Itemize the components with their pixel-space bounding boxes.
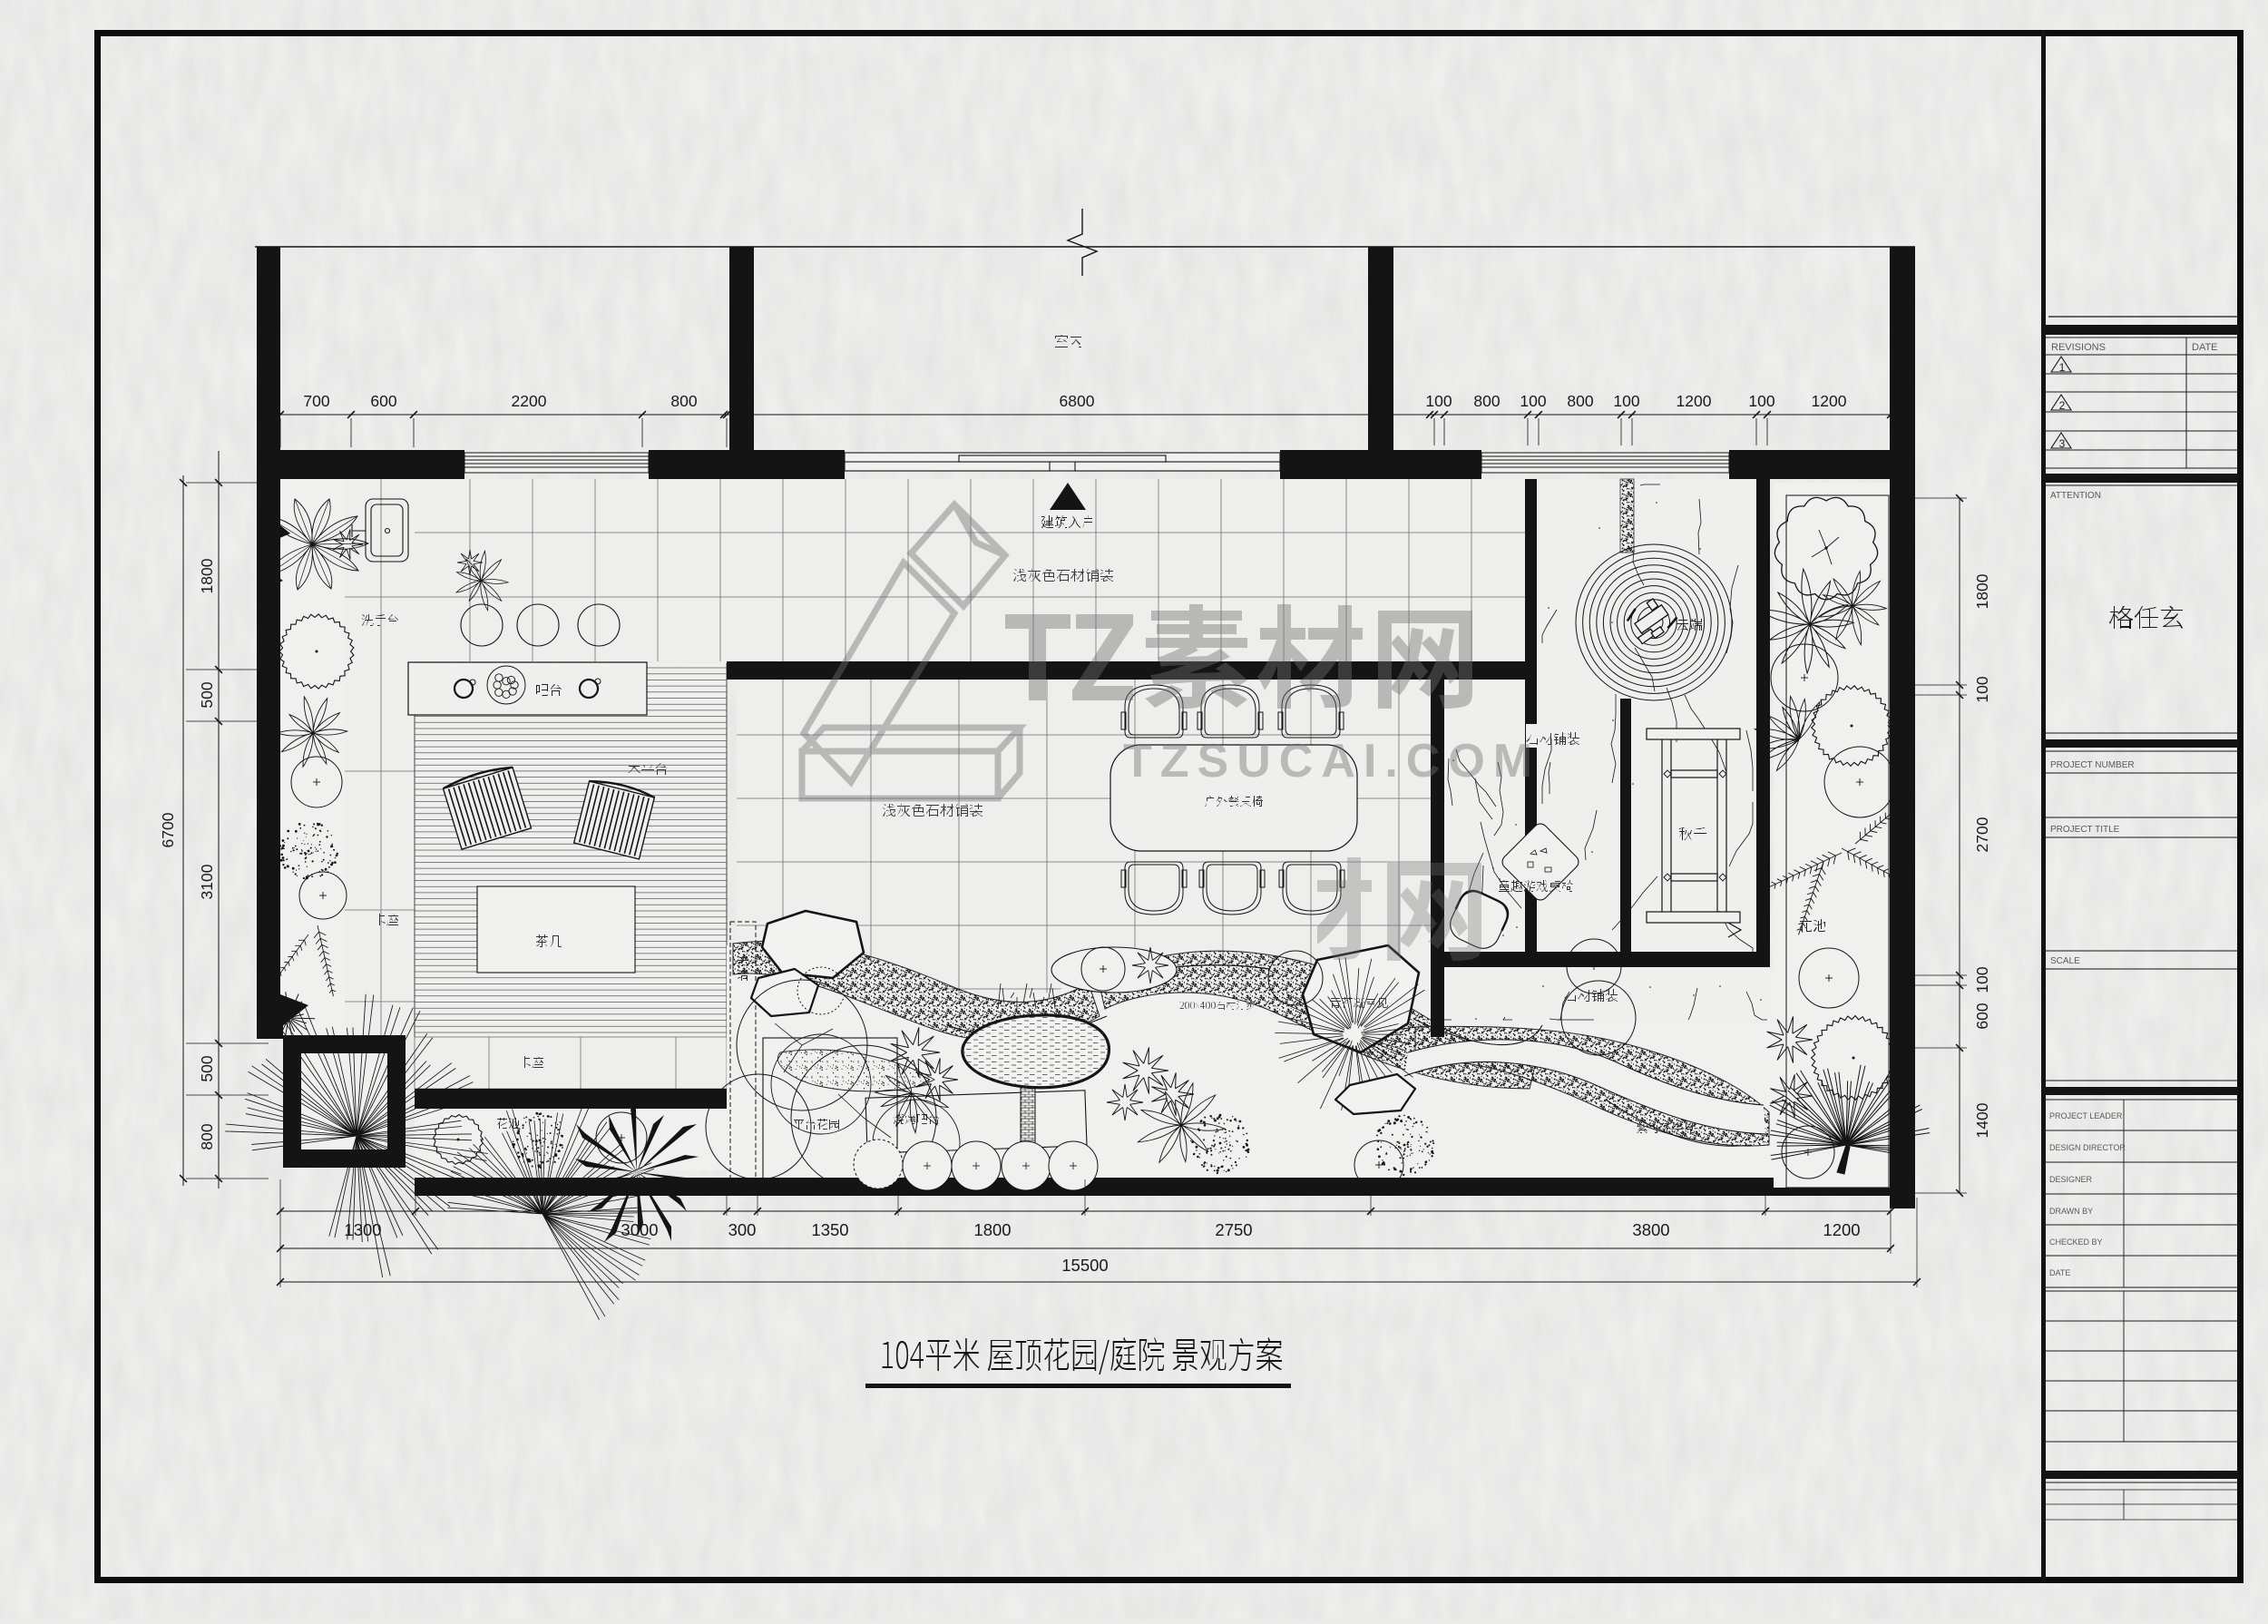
svg-text:CHECKED BY: CHECKED BY [2049,1238,2103,1247]
svg-text:1350: 1350 [811,1220,848,1239]
svg-text:100: 100 [1973,676,1991,702]
svg-text:2700: 2700 [1973,817,1991,852]
svg-text:100: 100 [1613,392,1639,410]
svg-text:1800: 1800 [973,1220,1011,1239]
svg-text:PROJECT TITLE: PROJECT TITLE [2050,825,2120,835]
svg-text:1300: 1300 [344,1220,381,1239]
svg-text:DRAWN BY: DRAWN BY [2049,1207,2093,1216]
svg-text:DESIGNER: DESIGNER [2049,1175,2093,1184]
svg-text:600: 600 [1973,1003,1991,1029]
svg-text:DATE: DATE [2049,1268,2070,1277]
svg-text:2: 2 [2059,399,2066,412]
svg-text:500: 500 [198,681,216,708]
svg-text:3: 3 [2059,437,2066,450]
svg-text:100: 100 [1520,392,1546,410]
svg-text:300: 300 [728,1220,757,1239]
svg-text:6700: 6700 [159,812,177,847]
svg-text:1200: 1200 [1677,392,1712,410]
svg-text:800: 800 [1567,392,1593,410]
svg-text:REVISIONS: REVISIONS [2051,342,2106,353]
svg-text:PROJECT NUMBER: PROJECT NUMBER [2050,760,2135,770]
svg-text:1200: 1200 [1823,1220,1860,1239]
svg-text:3800: 3800 [1632,1220,1669,1239]
svg-text:1400: 1400 [1973,1102,1991,1138]
svg-text:100: 100 [1748,392,1774,410]
svg-text:800: 800 [670,392,697,410]
svg-text:1800: 1800 [198,558,216,593]
svg-text:SCALE: SCALE [2050,956,2080,966]
svg-text:3000: 3000 [621,1220,658,1239]
svg-text:1800: 1800 [1973,573,1991,609]
svg-text:500: 500 [198,1055,216,1081]
svg-text:800: 800 [1473,392,1500,410]
svg-text:800: 800 [198,1123,216,1150]
svg-text:100: 100 [1425,392,1452,410]
svg-text:1200: 1200 [1812,392,1847,410]
svg-text:600: 600 [370,392,396,410]
svg-text:100: 100 [1973,966,1991,993]
svg-text:PROJECT LEADER: PROJECT LEADER [2049,1111,2123,1120]
svg-text:2200: 2200 [512,392,547,410]
svg-text:1: 1 [2059,361,2066,374]
svg-text:6800: 6800 [1060,392,1095,410]
svg-text:700: 700 [303,392,329,410]
svg-text:ATTENTION: ATTENTION [2050,491,2101,501]
svg-text:DATE: DATE [2192,342,2218,353]
svg-text:DESIGN DIRECTOR: DESIGN DIRECTOR [2049,1143,2126,1152]
svg-text:15500: 15500 [1061,1256,1108,1275]
svg-text:TZSUCAI.COM: TZSUCAI.COM [1123,735,1540,788]
svg-text:3100: 3100 [198,864,216,899]
svg-text:2750: 2750 [1215,1220,1252,1239]
